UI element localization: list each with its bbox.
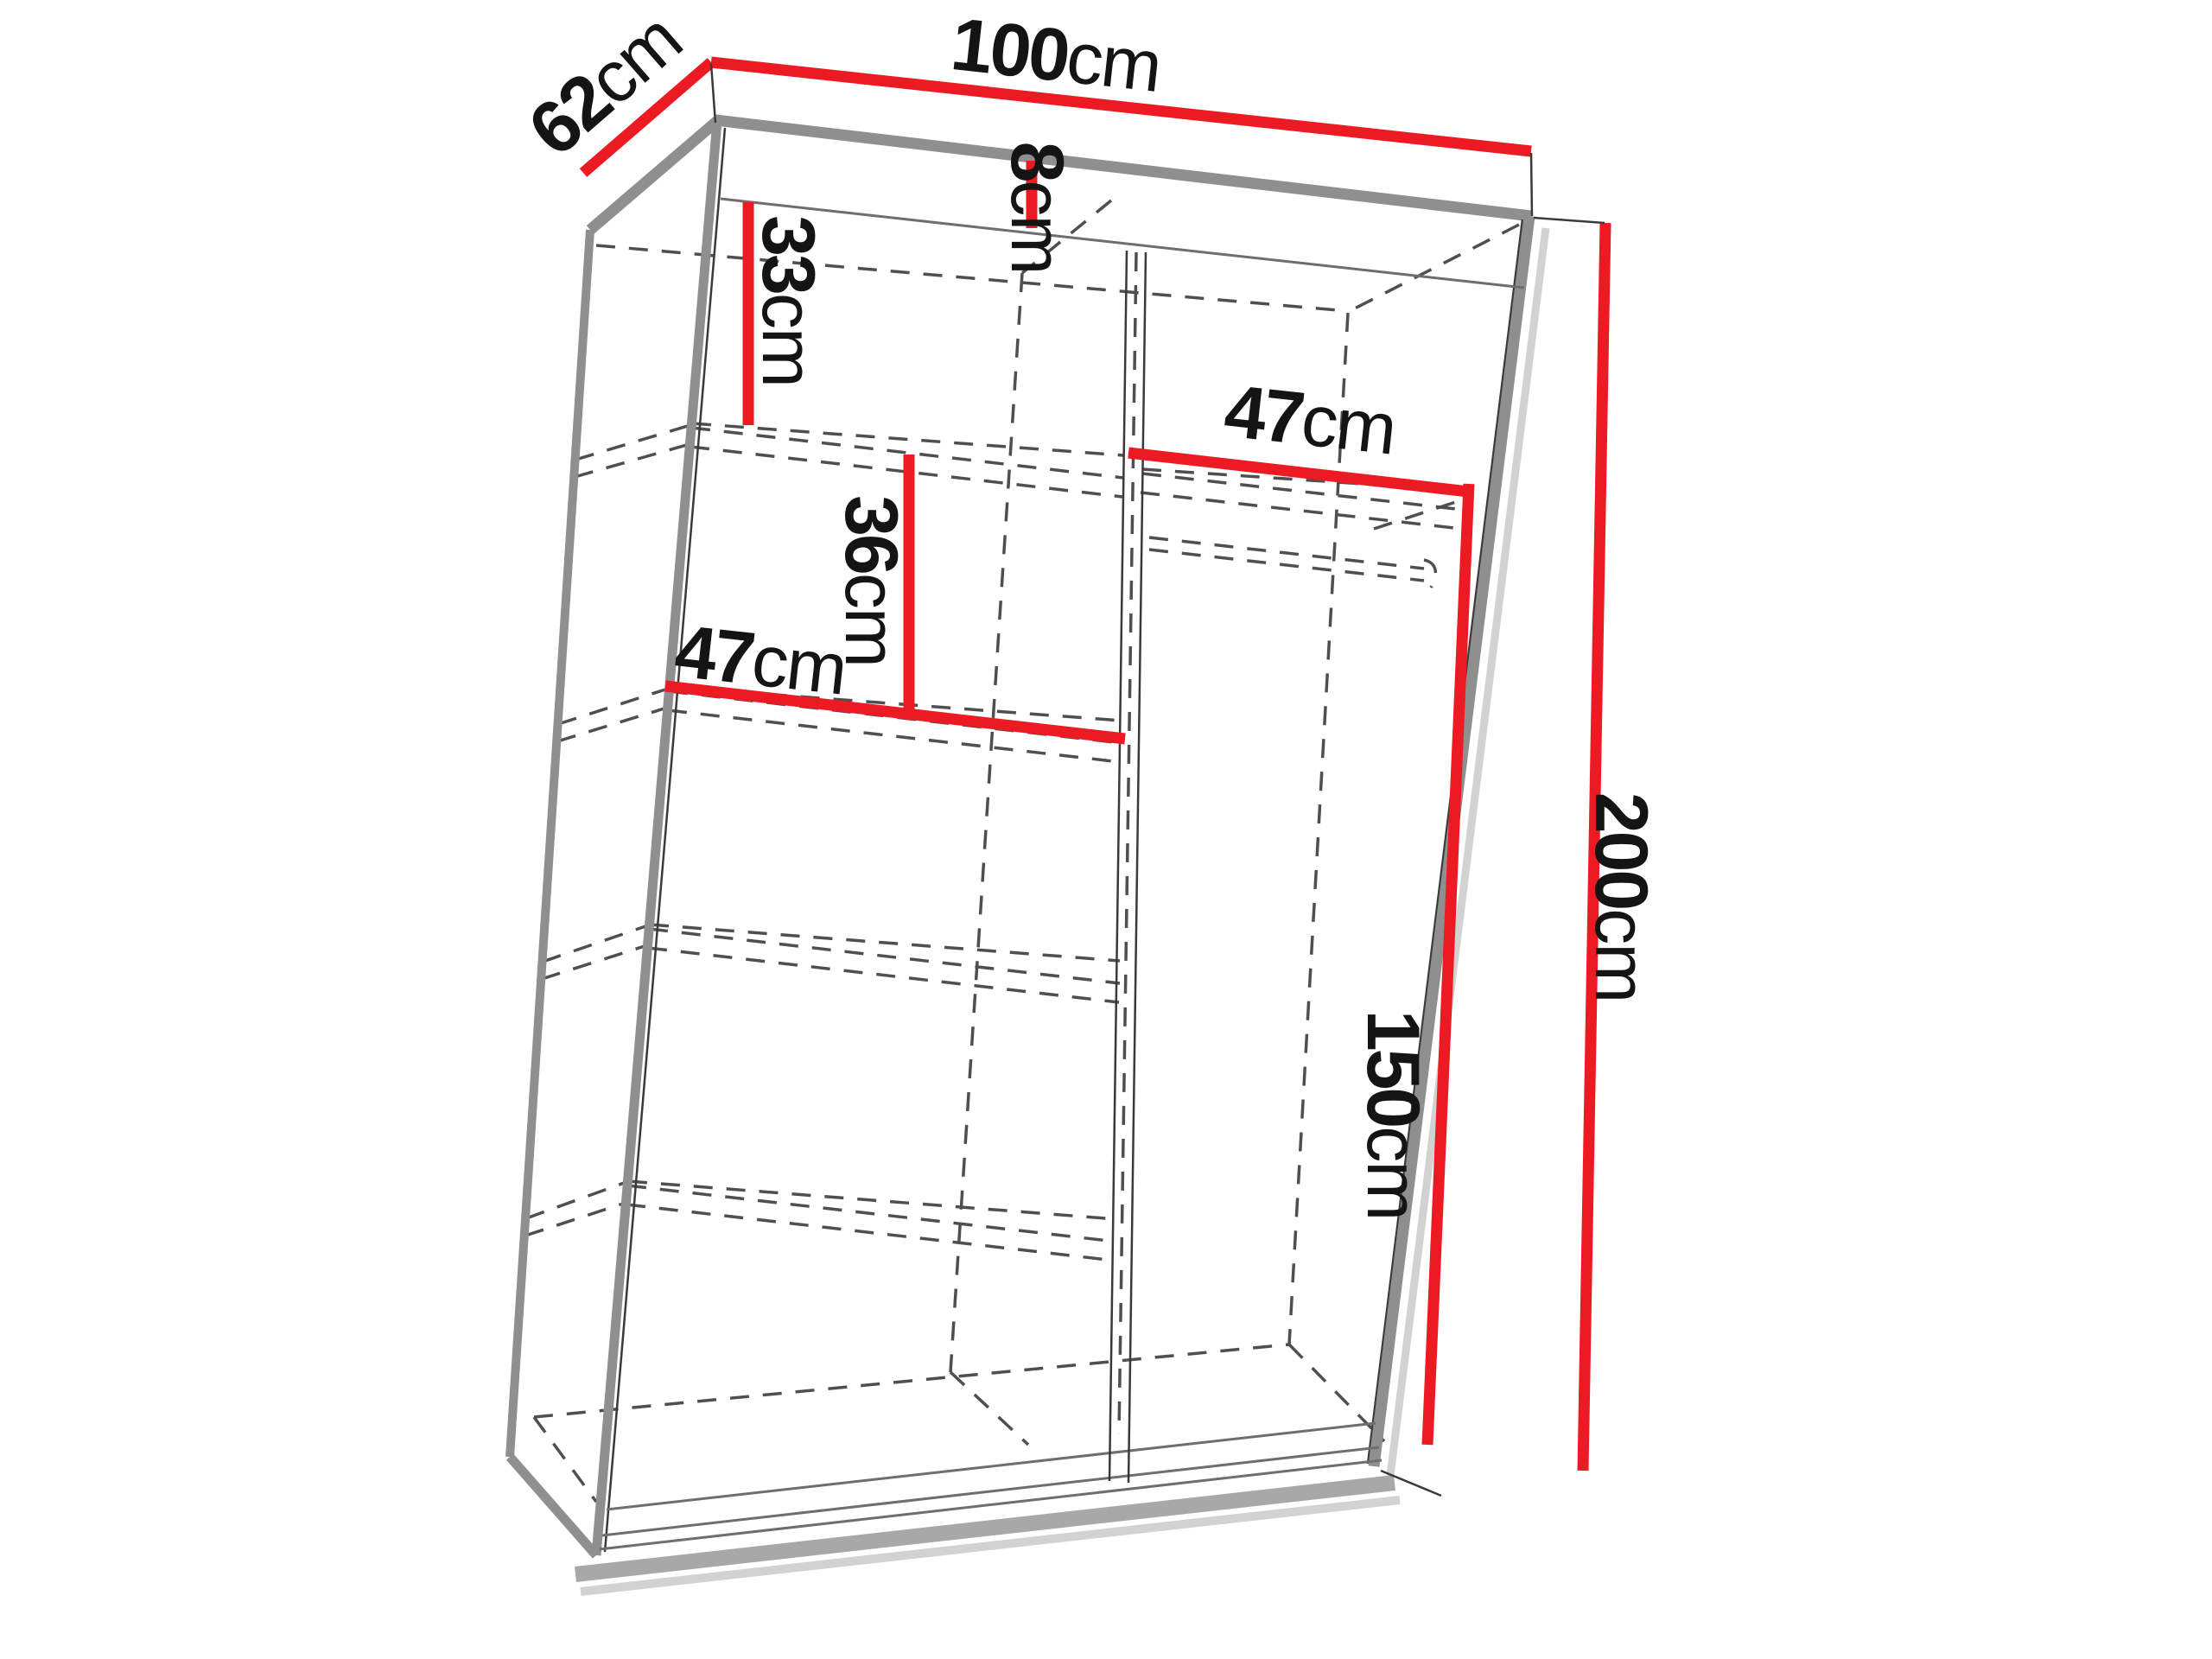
dim-label-upper-gap-value: 33 [747, 215, 829, 293]
dim-label-top-panel-value: 8 [995, 142, 1078, 181]
dim-label-hanging-value: 150 [1351, 1010, 1434, 1127]
dim-label-upper-gap-unit: cm [747, 293, 829, 386]
dim-label-left-shelf-value: 47 [671, 609, 758, 700]
dim-label-height: 200cm [1580, 792, 1662, 1001]
witness-top-left [711, 64, 715, 123]
witness-height-top [1534, 218, 1605, 223]
diagram-canvas: 62cm 100cm 8cm 33cm 47cm 36cm 47cm 150cm… [0, 0, 2212, 1659]
dim-label-top-panel: 8cm [995, 142, 1078, 274]
wardrobe-dimension-diagram: 62cm 100cm 8cm 33cm 47cm 36cm 47cm 150cm… [0, 0, 2212, 1659]
dim-label-right-shelf-unit: cm [1298, 378, 1400, 469]
dim-label-hanging: 150cm [1351, 1010, 1434, 1219]
dim-label-upper-gap: 33cm [747, 215, 829, 386]
witness-top-right [1531, 153, 1532, 216]
dim-label-left-shelf-unit: cm [748, 619, 850, 709]
dim-label-hanging-unit: cm [1352, 1126, 1433, 1219]
dim-label-top-panel-unit: cm [996, 180, 1077, 273]
dim-label-width-unit: cm [1063, 16, 1165, 107]
dim-label-width-value: 100 [947, 3, 1071, 98]
dim-label-right-shelf-value: 47 [1221, 369, 1307, 460]
dim-label-height-unit: cm [1580, 908, 1662, 1001]
dim-label-height-value: 200 [1580, 792, 1662, 909]
dim-label-shelf-gap-value: 36 [829, 495, 912, 573]
cabinet-body [510, 121, 1529, 1555]
dim-label-depth: 62cm [513, 0, 696, 172]
